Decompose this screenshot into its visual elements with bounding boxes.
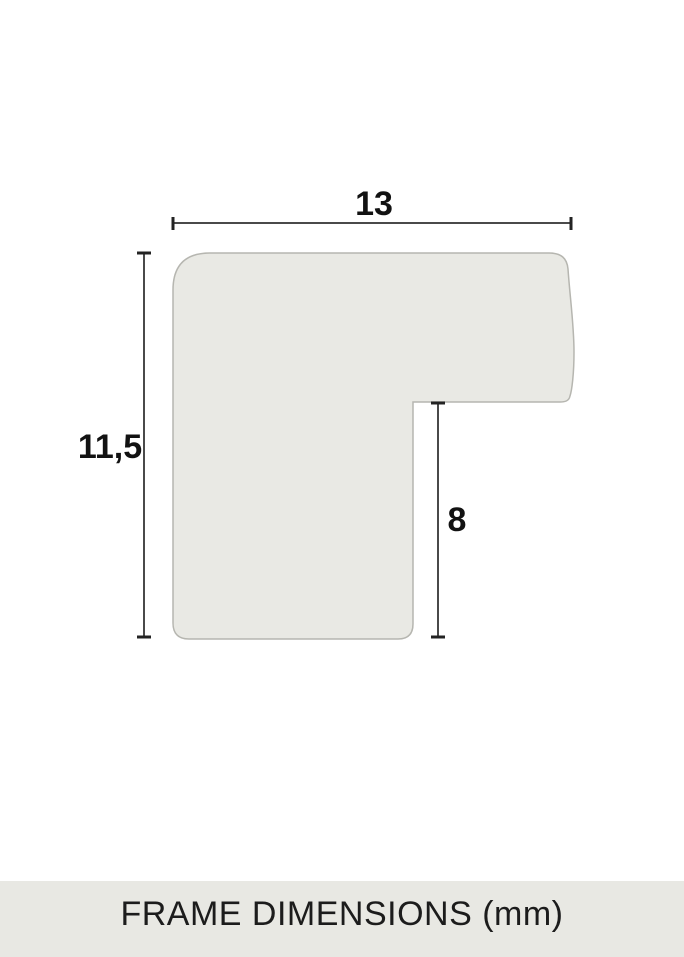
dimension-width-label: 13 [355, 185, 393, 223]
frame-profile-shape [173, 253, 574, 639]
dimension-width: 13 [173, 185, 571, 230]
dimension-rabbet: 8 [431, 403, 466, 637]
footer-bar: FRAME DIMENSIONS (mm) [0, 881, 684, 957]
dimension-height: 11,5 [78, 253, 151, 637]
dimension-height-label: 11,5 [78, 428, 142, 466]
frame-profile-diagram: 13 11,5 8 [0, 0, 684, 881]
footer-title: FRAME DIMENSIONS (mm) [120, 895, 563, 934]
dimension-rabbet-label: 8 [448, 501, 467, 539]
frame-profile-screenshot: 13 11,5 8 FRAME DIMENSIONS (mm) [0, 0, 684, 957]
